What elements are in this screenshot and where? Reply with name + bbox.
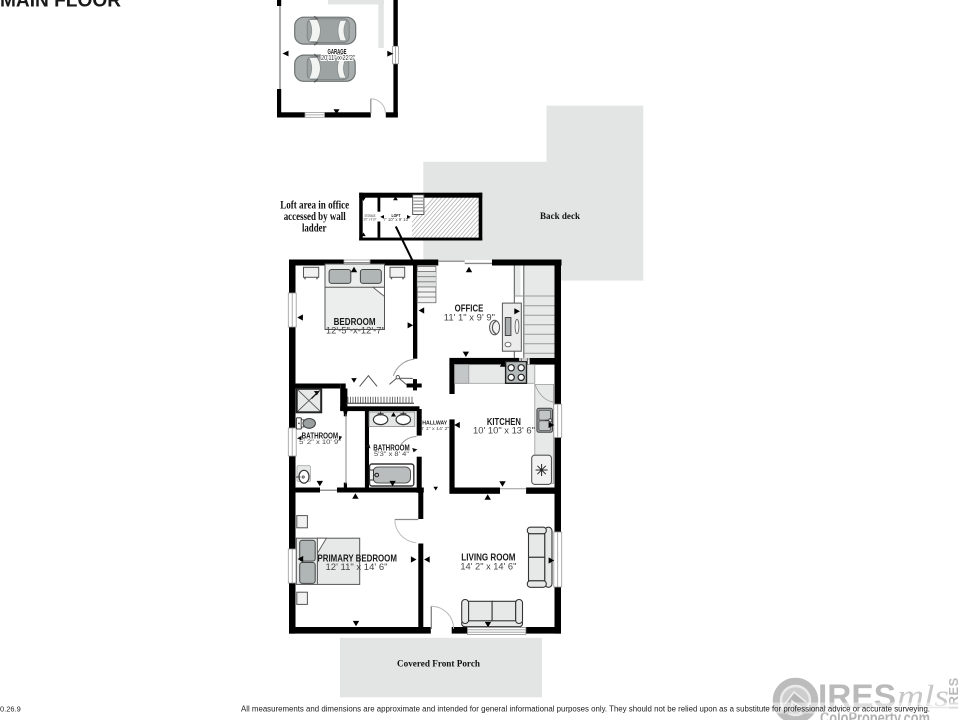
svg-text:HALLWAY: HALLWAY xyxy=(422,421,448,427)
svg-text:Covered Front Porch: Covered Front Porch xyxy=(397,660,481,670)
svg-text:3'0" x 9'10": 3'0" x 9'10" xyxy=(364,218,378,222)
svg-text:10' 10" x 13' 6": 10' 10" x 13' 6" xyxy=(473,425,535,435)
svg-text:All measurements and dimension: All measurements and dimensions are appr… xyxy=(241,705,930,714)
svg-text:12' 11" x 14' 6": 12' 11" x 14' 6" xyxy=(326,562,388,572)
svg-text:5' 2" x 10' 9": 5' 2" x 10' 9" xyxy=(299,439,341,446)
svg-text:0.26.9: 0.26.9 xyxy=(0,705,21,714)
svg-text:MAIN FLOOR: MAIN FLOOR xyxy=(0,0,121,11)
svg-text:5'3" x 8' 4": 5'3" x 8' 4" xyxy=(374,451,409,458)
svg-text:11' 1" x 9' 9": 11' 1" x 9' 9" xyxy=(444,312,495,322)
svg-text:7' 10" x 9' 10": 7' 10" x 9' 10" xyxy=(384,217,410,222)
svg-text:14' 2" x 14' 6": 14' 2" x 14' 6" xyxy=(460,561,516,571)
svg-text:ladder: ladder xyxy=(302,222,327,234)
svg-text:Back deck: Back deck xyxy=(540,212,581,222)
svg-text:12'-5"-x-12'-7": 12'-5"-x-12'-7" xyxy=(326,325,385,335)
svg-text:accessed by wall: accessed by wall xyxy=(284,211,346,223)
svg-text:Loft area in office: Loft area in office xyxy=(280,200,349,212)
svg-text:20'11" x 22'2": 20'11" x 22'2" xyxy=(321,55,355,62)
svg-text:3' 1" x 14' 2": 3' 1" x 14' 2" xyxy=(420,426,449,432)
